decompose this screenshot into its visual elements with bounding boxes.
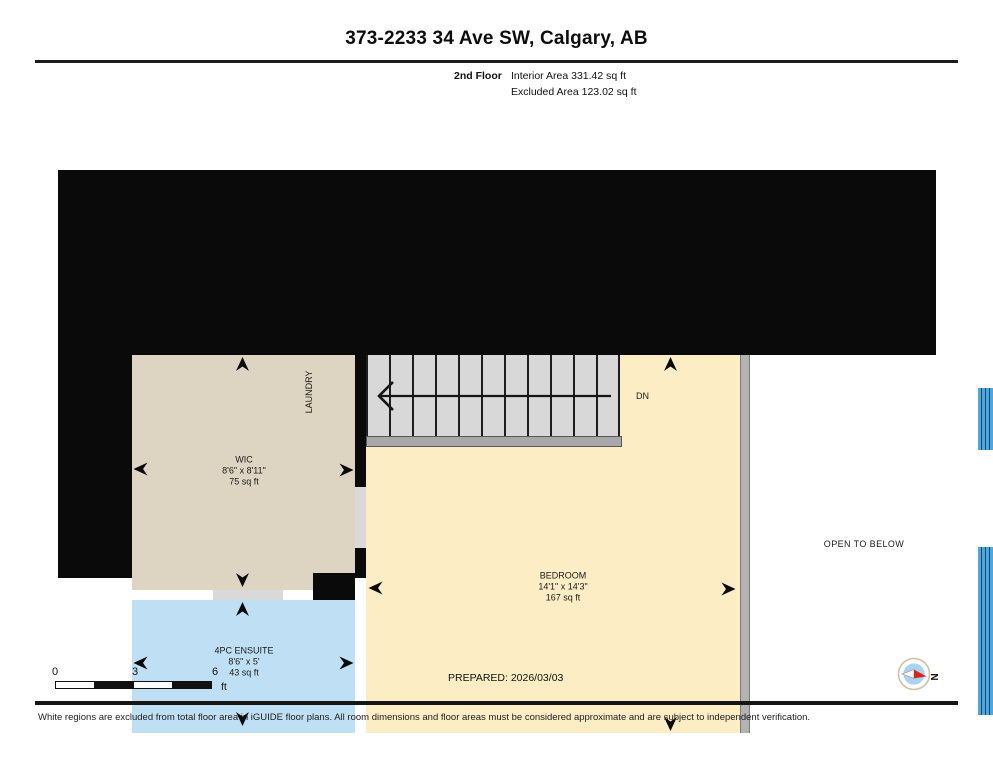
- room-dimensions: 14'1" x 14'3": [538, 582, 587, 593]
- stair-railing-bar: [366, 436, 622, 447]
- scale-tick: 6: [212, 666, 218, 678]
- excluded-area-text: Excluded Area 123.02 sq ft: [511, 86, 637, 98]
- prepared-date: PREPARED: 2026/03/03: [448, 672, 563, 684]
- laundry-label: LAUNDRY: [304, 371, 314, 414]
- room-area: 167 sq ft: [538, 593, 587, 604]
- room-name: BEDROOM: [538, 571, 587, 582]
- room-label-wic: WIC 8'6" x 8'11" 75 sq ft: [222, 455, 266, 488]
- scale-unit: ft: [221, 681, 227, 693]
- floorplan-walls: WIC 8'6" x 8'11" 75 sq ft 4PC ENSUITE 8'…: [58, 170, 936, 578]
- door-opening-wic-ensuite: [213, 590, 283, 600]
- door-opening-wic-bedroom: [355, 487, 366, 548]
- room-name: WIC: [222, 455, 266, 466]
- room-name: 4PC ENSUITE: [214, 646, 273, 657]
- interior-area-text: Interior Area 331.42 sq ft: [511, 70, 626, 82]
- header-divider: [35, 60, 958, 63]
- room-label-bedroom: BEDROOM 14'1" x 14'3" 167 sq ft: [538, 571, 587, 604]
- window-icon: [978, 547, 993, 715]
- room-area: 75 sq ft: [222, 477, 266, 488]
- scale-bar: 0 3 6 ft: [55, 666, 240, 692]
- window-icon: [978, 388, 993, 450]
- stair-dn-label: DN: [636, 391, 649, 401]
- room-dimensions: 8'6" x 8'11": [222, 466, 266, 477]
- footer-divider: [35, 701, 958, 705]
- stair-down-arrow-icon: [371, 376, 619, 416]
- disclaimer-text: White regions are excluded from total fl…: [38, 712, 810, 723]
- compass-icon: N: [896, 656, 944, 696]
- scale-tick: 3: [132, 666, 138, 678]
- scale-tick: 0: [52, 666, 58, 678]
- scale-bar-segments: [55, 681, 212, 689]
- open-to-below-label: OPEN TO BELOW: [824, 539, 904, 549]
- loft-railing: [740, 355, 750, 733]
- scale-segment: [94, 681, 134, 689]
- scale-segment: [172, 681, 212, 689]
- scale-segment: [55, 681, 95, 689]
- wall-section: [313, 573, 355, 600]
- page-title: 373-2233 34 Ave SW, Calgary, AB: [0, 28, 993, 50]
- floorplan-page: 373-2233 34 Ave SW, Calgary, AB 2nd Floo…: [0, 0, 993, 768]
- floor-label: 2nd Floor: [454, 70, 502, 82]
- compass-north-label: N: [928, 673, 939, 680]
- scale-segment: [133, 681, 173, 689]
